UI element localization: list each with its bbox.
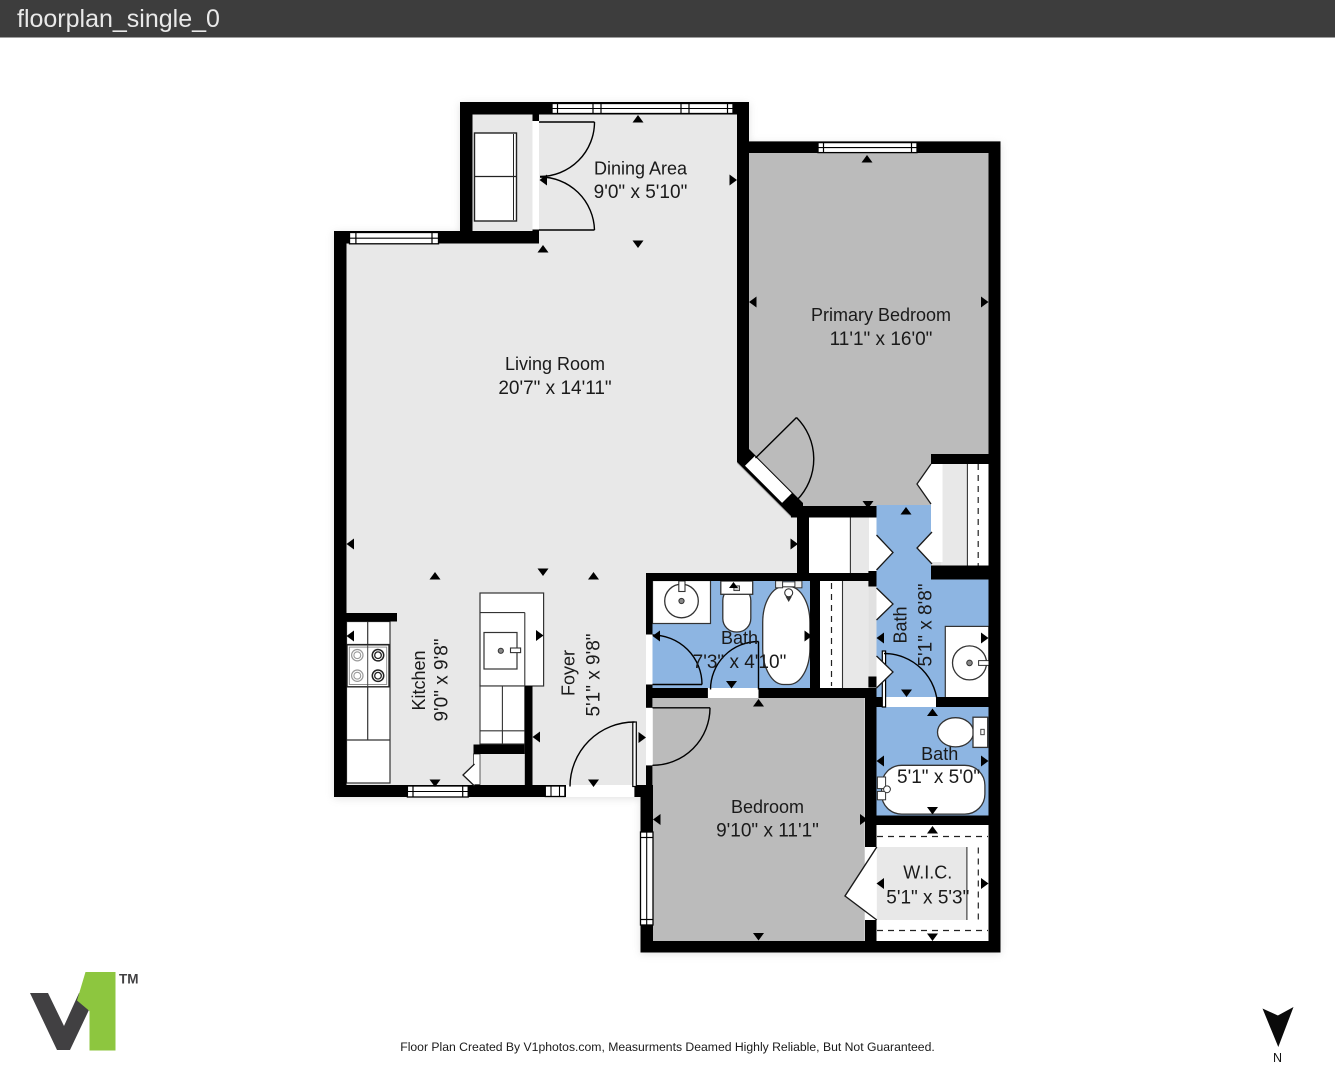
svg-text:5'1" x 9'8": 5'1" x 9'8" [584, 633, 605, 716]
svg-text:Bath: Bath [921, 744, 958, 764]
svg-text:TM: TM [119, 972, 139, 987]
svg-text:Dining Area: Dining Area [594, 159, 688, 179]
svg-text:Bath: Bath [891, 606, 911, 643]
svg-text:floorplan_single_0: floorplan_single_0 [17, 5, 220, 33]
svg-text:N: N [1273, 1051, 1282, 1065]
svg-text:7'3" x 4'10": 7'3" x 4'10" [693, 652, 787, 673]
svg-text:9'0" x 5'10": 9'0" x 5'10" [594, 182, 688, 203]
svg-text:Bedroom: Bedroom [731, 797, 804, 817]
svg-text:Primary Bedroom: Primary Bedroom [811, 305, 951, 325]
svg-text:5'1" x 5'3": 5'1" x 5'3" [886, 888, 969, 909]
svg-text:Foyer: Foyer [559, 650, 579, 696]
svg-text:9'0" x 9'8": 9'0" x 9'8" [431, 638, 452, 721]
svg-text:Floor Plan Created By V1photos: Floor Plan Created By V1photos.com, Meas… [400, 1040, 934, 1054]
svg-text:Kitchen: Kitchen [409, 650, 429, 710]
svg-text:11'1" x 16'0": 11'1" x 16'0" [830, 329, 933, 350]
svg-text:9'10" x 11'1": 9'10" x 11'1" [716, 821, 819, 842]
svg-text:Living Room: Living Room [505, 354, 605, 374]
svg-text:Bath: Bath [721, 628, 758, 648]
svg-text:W.I.C.: W.I.C. [903, 863, 952, 883]
svg-text:5'1" x 8'8": 5'1" x 8'8" [916, 583, 937, 666]
svg-text:20'7" x 14'11": 20'7" x 14'11" [498, 378, 611, 399]
svg-text:5'1" x 5'0": 5'1" x 5'0" [897, 767, 980, 788]
